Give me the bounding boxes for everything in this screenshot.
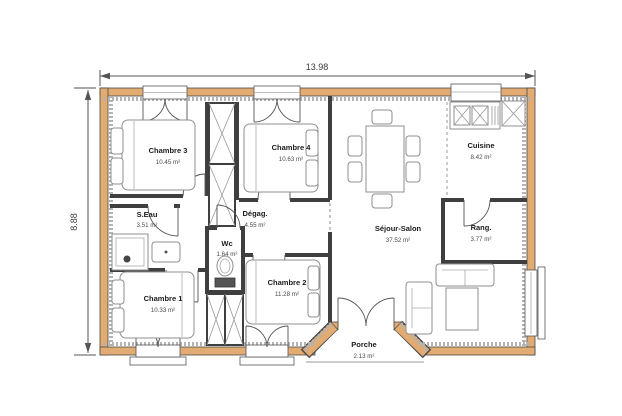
svg-text:Chambre 3: Chambre 3	[149, 146, 188, 155]
window-chambre2	[240, 326, 294, 365]
arrow-down-icon	[85, 343, 91, 353]
svg-text:Cuisine: Cuisine	[467, 141, 494, 150]
window-sejour-right	[525, 267, 545, 339]
width-dimension-label: 13.98	[306, 62, 329, 72]
height-dimension-label: 8.88	[69, 213, 79, 231]
room-label-seau: S.Eau 3.51 m²	[137, 210, 158, 229]
svg-text:2.13 m²: 2.13 m²	[354, 353, 375, 360]
svg-text:Rang.: Rang.	[471, 223, 492, 232]
arrow-left-icon	[100, 73, 110, 79]
svg-text:37.52 m²: 37.52 m²	[386, 237, 410, 244]
bed-chambre3-icon	[111, 120, 195, 190]
wardrobe-bedrooms-left	[207, 294, 225, 345]
sofa-top-icon	[436, 264, 494, 286]
sofa-left-icon	[406, 282, 432, 334]
room-label-porche: Porche 2.13 m²	[351, 340, 376, 360]
coffee-table-icon	[446, 288, 478, 330]
svg-text:4.55 m²: 4.55 m²	[245, 222, 266, 229]
window-chambre3	[143, 86, 187, 121]
svg-text:Dégag.: Dégag.	[242, 209, 267, 218]
wardrobe-bedrooms-right	[225, 294, 243, 345]
svg-text:10.45 m²: 10.45 m²	[156, 159, 180, 166]
arrow-up-icon	[85, 90, 91, 100]
dining-table-icon	[348, 110, 420, 208]
arrow-right-icon	[525, 73, 535, 79]
room-label-sejour: Séjour-Salon 37.52 m²	[375, 224, 422, 244]
room-label-degag: Dégag. 4.55 m²	[242, 209, 267, 229]
washbasin-icon	[152, 242, 180, 262]
bed-chambre1-icon	[112, 272, 194, 338]
svg-text:Porche: Porche	[351, 340, 376, 349]
wardrobe-hall-top	[209, 103, 235, 164]
svg-text:3.77 m²: 3.77 m²	[471, 236, 492, 243]
svg-text:Chambre 2: Chambre 2	[268, 278, 307, 287]
window-cuisine	[451, 84, 501, 101]
svg-text:Chambre 1: Chambre 1	[144, 294, 183, 303]
room-label-rang: Rang. 3.77 m²	[471, 223, 492, 243]
wardrobe-hall-bottom	[209, 164, 235, 226]
room-label-wc: Wc 1.64 m²	[217, 239, 238, 258]
svg-text:10.63 m²: 10.63 m²	[279, 156, 303, 163]
furniture	[111, 101, 525, 362]
svg-text:Chambre 4: Chambre 4	[272, 143, 312, 152]
shower-drain-icon	[124, 256, 131, 263]
svg-text:1.64 m²: 1.64 m²	[217, 251, 238, 258]
svg-text:Séjour-Salon: Séjour-Salon	[375, 224, 422, 233]
toilet-icon	[215, 256, 235, 287]
kitchen-appliance-icon	[502, 101, 525, 126]
svg-text:10.33 m²: 10.33 m²	[151, 307, 175, 314]
door-entry-double	[338, 298, 394, 326]
shower-icon	[112, 234, 148, 270]
svg-text:3.51 m²: 3.51 m²	[137, 222, 158, 229]
kitchen-sink-icon	[450, 102, 500, 129]
floor-plan: 13.98 8.88	[0, 0, 622, 416]
dimension-width: 13.98	[100, 62, 535, 86]
svg-text:8.42 m²: 8.42 m²	[471, 154, 492, 161]
dimension-height: 8.88	[69, 88, 96, 355]
room-label-cuisine: Cuisine 8.42 m²	[467, 141, 494, 161]
window-chambre4	[254, 86, 300, 122]
svg-text:11.28 m²: 11.28 m²	[275, 291, 299, 298]
svg-text:S.Eau: S.Eau	[137, 210, 158, 219]
svg-text:Wc: Wc	[221, 239, 232, 248]
